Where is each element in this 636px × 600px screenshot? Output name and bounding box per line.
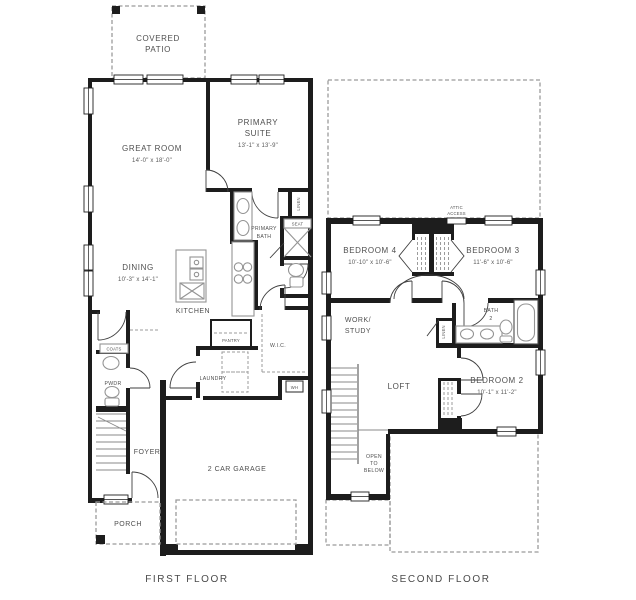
room-label-work-study: STUDY: [345, 328, 371, 335]
window: [322, 272, 331, 294]
room-label-laundry: LAUNDRY: [200, 376, 227, 382]
label-open-to-below: TO: [370, 461, 378, 467]
room-label-bath2: BATH: [484, 308, 499, 314]
porch-post: [96, 535, 105, 544]
room-label-work-study: WORK/: [345, 317, 371, 324]
room-label-covered-patio: COVERED: [136, 34, 180, 43]
floor-plan-page: COVERED PATIO GREAT ROOM 14'-0" x 18'-0"…: [0, 0, 636, 600]
room-label-primary-suite: SUITE: [245, 129, 272, 138]
window: [353, 216, 380, 225]
window: [497, 427, 516, 436]
window: [485, 216, 512, 225]
room-label-bedroom4: BEDROOM 4: [343, 246, 396, 255]
kitchen-counter-sink: [232, 242, 254, 316]
window: [114, 75, 143, 84]
primary-bath-vanity: [234, 192, 252, 240]
room-label-powder: PWDR: [104, 381, 121, 387]
second-floor: ATTIC ACCESS BEDROOM 4 10'-10" x 10'-6" …: [322, 80, 545, 552]
room-label-wic: W.I.C.: [270, 343, 286, 349]
label-attic-access: ATTIC: [450, 205, 463, 210]
first-floor: COVERED PATIO GREAT ROOM 14'-0" x 18'-0"…: [84, 6, 313, 556]
toilet-powder: [105, 387, 119, 407]
attic-access-hatch: [447, 218, 466, 224]
dim-label-great-room: 14'-0" x 18'-0": [132, 158, 172, 164]
dim-label-bedroom2: 10'-1" x 11'-2": [477, 390, 516, 396]
room-label-bath2: 2: [489, 316, 492, 322]
toilet-bath2: [500, 320, 512, 342]
room-label-bedroom3: BEDROOM 3: [466, 246, 519, 255]
garage-door-outline: [176, 500, 296, 544]
window: [351, 492, 369, 501]
roof-outline-bottom-left: [326, 500, 390, 545]
dim-label-dining: 10'-3" x 14'-1": [118, 277, 158, 283]
patio-post: [197, 6, 205, 14]
room-label-garage: 2 CAR GARAGE: [208, 466, 267, 473]
room-label-dining: DINING: [122, 263, 154, 272]
window: [322, 316, 331, 340]
caption-first-floor: FIRST FLOOR: [145, 574, 229, 585]
bath2-vanity: [456, 326, 502, 343]
window: [84, 186, 93, 212]
room-label-kitchen: KITCHEN: [176, 308, 210, 315]
room-label-porch: PORCH: [114, 521, 142, 528]
stairs-first-floor: [96, 414, 126, 470]
stairs-second-floor: [331, 364, 388, 464]
washer: [222, 352, 248, 372]
room-label-loft: LOFT: [388, 382, 411, 391]
roof-outline-bottom-right: [390, 433, 538, 552]
room-label-linen: LINEN: [296, 197, 301, 210]
window: [536, 270, 545, 295]
bathtub: [514, 300, 538, 344]
room-label-linen2: LINEN: [441, 325, 446, 338]
room-label-bedroom2: BEDROOM 2: [470, 376, 523, 385]
window: [322, 390, 331, 413]
room-label-coats: COATS: [106, 347, 121, 352]
label-open-to-below: OPEN: [366, 454, 382, 460]
room-label-foyer: FOYER: [134, 449, 161, 456]
room-label-primary-suite: PRIMARY: [238, 118, 279, 127]
window: [84, 245, 93, 270]
window: [259, 75, 284, 84]
window: [536, 350, 545, 375]
fixtures-second-floor: [456, 300, 538, 344]
caption-second-floor: SECOND FLOOR: [391, 574, 490, 585]
room-label-great-room: GREAT ROOM: [122, 144, 182, 153]
floor-plan-drawing: COVERED PATIO GREAT ROOM 14'-0" x 18'-0"…: [0, 0, 636, 600]
window: [84, 271, 93, 296]
label-open-to-below: BELOW: [364, 468, 384, 474]
powder-sink: [103, 357, 119, 370]
room-label-covered-patio: PATIO: [145, 45, 171, 54]
label-attic-access: ACCESS: [447, 211, 465, 216]
label-seat: SEAT: [292, 222, 304, 227]
window: [84, 88, 93, 114]
room-label-primary-bath: PRIMARY: [251, 226, 277, 232]
dim-label-primary-suite: 13'-1" x 13'-9": [238, 143, 278, 149]
label-water-heater: WH: [291, 385, 298, 390]
closet-bifold-right: [451, 240, 464, 272]
kitchen-island: [176, 250, 206, 302]
closet-bifold-left: [399, 240, 412, 272]
window: [231, 75, 257, 84]
dryer: [222, 372, 248, 392]
dim-label-bedroom4: 10'-10" x 10'-6": [348, 260, 391, 266]
toilet-primary: [289, 264, 304, 288]
roof-outline-top: [328, 80, 540, 218]
window: [147, 75, 183, 84]
room-label-pantry: PANTRY: [222, 338, 240, 343]
room-label-primary-bath: BATH: [257, 234, 272, 240]
dim-label-bedroom3: 11'-6" x 10'-6": [473, 260, 512, 266]
patio-post: [112, 6, 120, 14]
